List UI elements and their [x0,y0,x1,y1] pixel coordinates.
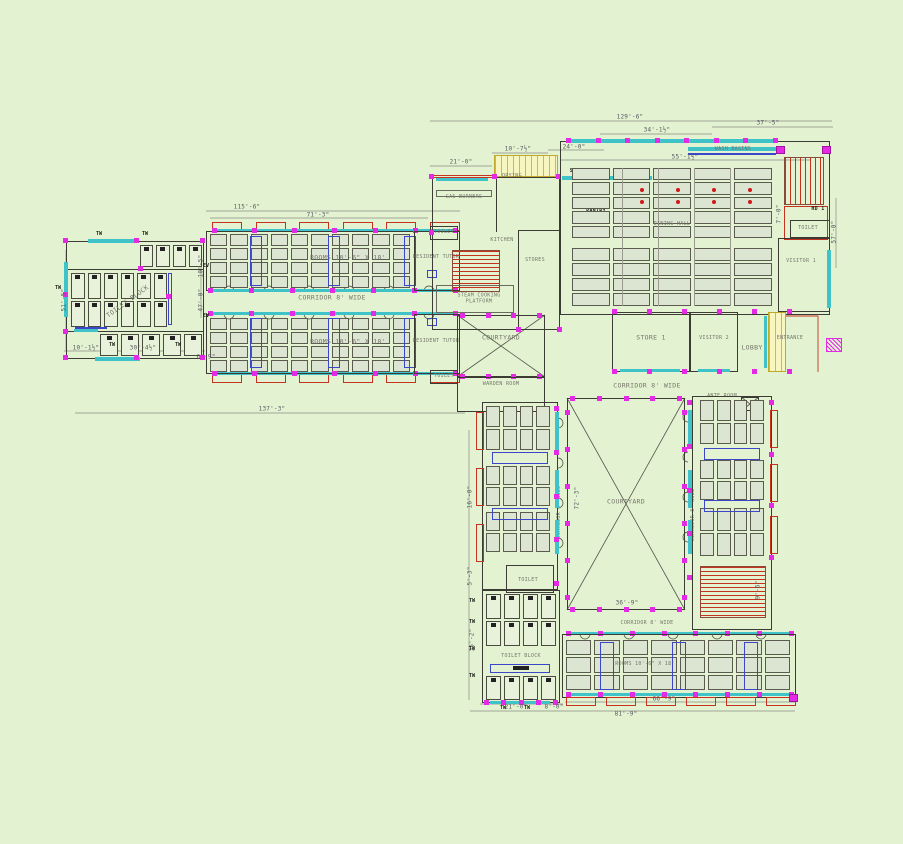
toilet-stalls [486,676,556,700]
dim-8-0: 8'-0" [544,704,563,711]
dining-table-grid [572,248,772,306]
blue-partition [75,327,107,329]
staircase-kitchen [452,250,500,292]
visitor-2-label: VISITOR 2 [699,336,729,342]
window-strip [827,250,831,308]
window-tag: TW [55,285,61,291]
dim-37-5: 37'-5" [757,120,780,127]
visitor-room-1 [778,238,830,312]
window-tag: TW [175,342,181,348]
blue-partition [250,236,262,286]
dim-115-6: 115'-6" [234,204,261,211]
toilet-label: TOILET [434,374,454,380]
door-marker-row [570,396,682,401]
blue-partition [744,642,758,690]
column-dot [676,188,680,192]
dim-16-0: 16'-0" [467,486,474,509]
column-line [622,168,623,306]
room-projection [476,412,484,450]
upper-courtyard-label: COURTYARD [482,334,520,341]
door-marker-column [565,410,570,600]
toilet-stalls [486,594,556,646]
blue-partition [168,273,172,325]
corridor-label-south: CORRIDOR 8' WIDE [621,621,674,627]
dim-21-0-top: 21'-0" [450,159,473,166]
window-tag: TW [142,231,148,237]
window-tag: TW [109,342,115,348]
door-marker-row [460,313,542,318]
trough-fixture [513,666,529,670]
dim-10-1: 10'-1½" [73,345,100,352]
dim-34-1: 34'-1½" [644,127,671,134]
dim-24-0: 24'-0" [563,144,586,151]
store-1-room [612,312,690,372]
entrance-label: ENTRANCE [777,336,803,342]
dim-47-0: 47'-0" [198,289,205,312]
window-strip [88,239,136,243]
dim-10-7: 10'-7½" [505,146,532,153]
corridor-label-mid: CORRIDOR 8' WIDE [613,382,680,389]
door-marker-row [570,607,682,612]
door-marker [557,327,562,332]
dim-9-6: 9'-6" [755,580,762,599]
column-dot [748,200,752,204]
corridor-label-main: CORRIDOR 8' WIDE [298,294,365,301]
bed-grid [486,466,550,506]
rooms-label-south: ROOMS 10'-6" X 18' [615,662,675,668]
door-marker-large [776,146,785,154]
door-marker-row [566,692,794,697]
toilet-stalls [71,273,167,327]
dim-71-3: 71'-3" [307,212,330,219]
window-strip [436,178,488,181]
rooms-label-lower: ROOMS 10'-6" X 18' [310,338,386,345]
store-1-label: STORE 1 [636,334,666,341]
door-marker [200,238,205,243]
hd-label: HD 1 [811,207,824,213]
window-tag: TW [469,673,475,679]
door-marker-row [612,309,792,314]
dim-66-9: 66'-9" [653,696,676,703]
blue-partition [600,642,614,690]
visitor-2-room [690,312,738,372]
steam-platform-label: STEAM COOKING PLATFORM [457,293,500,305]
entrance-strip [768,312,786,372]
vent-tag: EV [203,313,209,319]
window-tag: TW [500,705,506,711]
door-marker-row [612,369,792,374]
wash-basin-counter [688,153,776,155]
entrance-route-line [786,316,818,372]
blue-partition [704,448,760,460]
window-tag: TW [469,598,475,604]
column-dot [712,200,716,204]
bed-grid [700,460,764,500]
column-dot [640,188,644,192]
south-toilet-block-label: TOILET BLOCK [501,654,541,660]
vent-tag: EV [203,263,209,269]
door-marker-column [687,400,692,580]
blue-partition [250,318,262,368]
dim-72-3: 72'-3" [574,487,581,510]
upper-courtyard [457,315,545,377]
door-marker [134,238,139,243]
dim-55-1: 55'-1½" [672,154,699,161]
dim-57-0: 57'-0" [831,221,838,244]
door-marker [63,238,68,243]
room-projection [476,524,484,562]
blue-partition [492,508,548,520]
warden-room-label: WARDEN ROOM [483,382,519,388]
window-tag: TW [96,231,102,237]
column-line [694,168,695,306]
bed-grid [700,400,764,444]
door-marker [429,174,434,179]
column-line [658,168,659,306]
toilet-stalls [140,245,202,267]
door-marker [63,355,68,360]
dim-7-0: 7'-0" [776,204,783,223]
door-marker [63,329,68,334]
blue-partition [492,452,548,464]
entrance-porch [826,338,842,352]
column-dot [640,200,644,204]
staircase-northeast [784,157,824,205]
door-marker [134,355,139,360]
bed-grid [486,406,550,450]
bed-grid [700,508,764,556]
dim-overall-top: 129'-6" [617,114,644,121]
blue-partition [704,500,760,512]
door-marker-large [822,146,831,154]
room-projections-south-wing [566,697,796,706]
room-projection [476,468,484,506]
dim-30-4: 30'-4½" [130,345,157,352]
dim-51-5: 51'-5" [61,289,68,312]
column-dot [676,200,680,204]
dim-36-9: 36'-9" [616,600,639,607]
kitchen-label: KITCHEN [490,238,513,244]
lobby-label: LOBBY [741,344,762,351]
kitchen-wall [496,177,497,232]
dim-6-9: 6'-9" [196,354,215,361]
door-marker-column [554,406,559,586]
dim-137-3: 137'-3" [259,406,286,413]
drying-label: DRYING [502,174,522,180]
column-line [730,168,731,306]
dim-81-9: 81'-9" [615,711,638,718]
floor-plan: TOILET BLOCK ROOMS 10'-6" X 18' ROOMS 10… [0,0,903,844]
window-strip [74,329,98,332]
toilet-label: TOILET [798,226,818,232]
gas-burners-label: GAS BURNERS [446,195,482,201]
wash-basins-label: WASH BASINS [715,147,751,153]
door-marker [492,174,497,179]
door-marker [429,230,434,235]
column-dot [712,188,716,192]
window-tag: TW [469,619,475,625]
toilet-label: TOILET [518,578,538,584]
dim-5-3: 5'-3" [467,566,474,585]
door-marker-column [769,400,774,560]
dining-hall-label: DINING HALL [654,222,690,228]
door-marker-large [789,694,798,702]
door-marker-row [566,138,778,143]
column-dot [748,188,752,192]
rooms-label-upper: ROOMS 10'-6" X 18' [310,254,386,261]
window-strip [764,316,767,368]
visitor-1-label: VISITOR 1 [786,259,816,265]
door-marker [138,266,143,271]
window-tag: TW [524,705,530,711]
window-tag: TW [469,646,475,652]
west-block-wall [66,269,204,270]
stores-label: STORES [525,258,545,264]
lower-courtyard-label: COURTYARD [607,498,645,505]
door-marker [166,294,171,299]
resident-tutor-label: RESIDENT TUTOR [413,339,459,345]
